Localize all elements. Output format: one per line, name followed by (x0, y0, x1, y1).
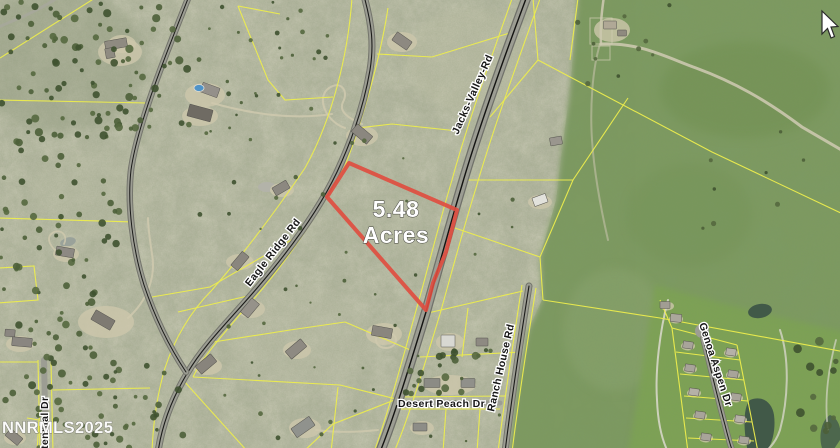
building (424, 379, 440, 388)
tree (114, 370, 118, 374)
tree (168, 61, 172, 65)
tree (226, 91, 231, 96)
tree (833, 359, 838, 364)
tree (121, 59, 125, 63)
tree (116, 104, 123, 111)
tree (76, 212, 82, 218)
tree (249, 138, 252, 141)
tree (98, 219, 106, 227)
tree (278, 47, 281, 50)
tree (105, 234, 111, 240)
tree (13, 263, 20, 270)
tree (103, 9, 111, 17)
tree (510, 198, 514, 202)
tree (204, 131, 208, 135)
tree (113, 395, 117, 399)
tree (354, 409, 357, 412)
parcel-acreage-unit: Acres (363, 222, 429, 248)
tree (831, 415, 836, 420)
tree (88, 345, 92, 349)
swimming-pool (194, 85, 204, 92)
tree (49, 6, 53, 10)
tree (258, 374, 261, 377)
tree (169, 26, 175, 32)
tree (152, 14, 160, 22)
tree (338, 313, 341, 316)
tree (59, 194, 64, 199)
tree (793, 345, 802, 354)
tree (101, 178, 106, 183)
tree (110, 360, 117, 367)
building (441, 335, 455, 347)
tree (775, 202, 780, 207)
tree (69, 381, 73, 385)
tree (197, 57, 202, 62)
tree (125, 93, 133, 101)
tree (174, 36, 181, 43)
tree (823, 428, 829, 434)
tree (88, 298, 96, 306)
tree (53, 334, 59, 340)
tree (56, 249, 62, 255)
building (728, 370, 739, 378)
tree (474, 253, 477, 256)
tree (810, 425, 817, 432)
tree (830, 367, 837, 374)
tree (35, 320, 39, 324)
tree (139, 6, 143, 10)
tree (472, 352, 480, 360)
tree (155, 428, 159, 432)
tree (134, 395, 138, 399)
tree (300, 30, 305, 35)
aerial-map-view: 5.48 Acres Jacks-Valley-Rd Eagle Ridge R… (0, 0, 840, 448)
tree (150, 414, 157, 421)
tree (226, 324, 230, 328)
tree (779, 130, 782, 133)
tree (29, 89, 34, 94)
tree (3, 207, 9, 213)
tree (414, 273, 417, 276)
tree (71, 179, 77, 185)
building (683, 341, 694, 349)
tree (125, 45, 133, 53)
tree (46, 331, 51, 336)
tree (72, 58, 78, 64)
tree (16, 14, 21, 19)
tree (107, 200, 114, 207)
tree (71, 258, 75, 262)
building (689, 388, 700, 396)
tree (276, 435, 281, 440)
tree (32, 3, 39, 10)
tree (28, 327, 33, 332)
tree (585, 81, 590, 86)
tree (83, 381, 89, 387)
building (701, 433, 712, 441)
tree (75, 45, 81, 51)
tree (123, 108, 129, 114)
tree (249, 38, 253, 42)
parcel-acreage-value: 5.48 (373, 196, 420, 222)
tree (298, 9, 302, 13)
tree (107, 26, 113, 32)
building (685, 364, 696, 372)
tree (103, 374, 109, 380)
tree (85, 258, 89, 262)
tree (350, 141, 354, 145)
tree (209, 130, 212, 133)
tree (280, 56, 283, 59)
tree (796, 408, 805, 417)
building (726, 348, 737, 356)
tree (441, 384, 449, 392)
tree (240, 101, 243, 104)
tree (362, 138, 367, 143)
tree (83, 345, 88, 350)
tree (115, 123, 123, 131)
tree (47, 384, 53, 390)
tree (95, 116, 103, 124)
tree (42, 43, 47, 48)
tree (55, 85, 62, 92)
tree (309, 302, 311, 304)
tree (34, 389, 40, 395)
tree (139, 41, 144, 46)
tree (458, 389, 464, 395)
tree (110, 377, 116, 383)
tree (592, 42, 596, 46)
tree (295, 285, 298, 288)
tree (403, 389, 409, 395)
tree (186, 122, 192, 128)
tree (294, 175, 298, 179)
tree (60, 116, 64, 120)
tree (345, 251, 348, 254)
tree (90, 111, 95, 116)
tree (124, 424, 129, 429)
tree (183, 65, 191, 73)
tree (277, 93, 281, 97)
tree (60, 311, 64, 315)
tree (323, 56, 327, 60)
building (413, 423, 427, 431)
tree (82, 274, 87, 279)
tree (75, 131, 82, 138)
tree (54, 234, 58, 238)
tree (147, 125, 151, 129)
tree (451, 349, 458, 356)
tree (806, 363, 814, 371)
tree (129, 127, 133, 131)
tree (52, 132, 58, 138)
building (12, 337, 33, 348)
tree (402, 157, 404, 159)
tree (101, 192, 105, 196)
tree (125, 56, 131, 62)
tree (179, 120, 185, 126)
tree (93, 91, 100, 98)
tree (87, 375, 92, 380)
tree (429, 435, 432, 438)
tree (709, 158, 713, 162)
tree (50, 33, 57, 40)
tree (96, 59, 102, 65)
tree (286, 17, 289, 20)
tree (262, 322, 266, 326)
building (5, 329, 16, 337)
tree (132, 422, 136, 426)
tree (259, 228, 261, 230)
tree (511, 226, 514, 229)
tree (156, 4, 162, 10)
building (670, 314, 682, 323)
tree (112, 240, 119, 247)
tree (9, 390, 16, 397)
tree (93, 34, 99, 40)
tree (43, 354, 50, 361)
tree (36, 226, 43, 233)
tree (155, 402, 162, 409)
tree (275, 31, 280, 36)
tree (39, 136, 45, 142)
tree (26, 130, 30, 134)
tree (15, 321, 22, 328)
tree (2, 175, 7, 180)
tree (460, 377, 463, 380)
tree (30, 213, 37, 220)
tree (575, 20, 580, 25)
tree (309, 107, 313, 111)
tree (106, 111, 111, 116)
tree (162, 371, 167, 376)
tree (157, 94, 161, 98)
tree (87, 7, 93, 13)
tree (144, 363, 150, 369)
tree (374, 293, 377, 296)
tree (40, 367, 47, 374)
tree (488, 349, 492, 353)
tree (326, 34, 330, 38)
tree (17, 85, 22, 90)
tree (465, 440, 467, 442)
tree (313, 366, 315, 368)
tree (71, 15, 79, 23)
tree (478, 213, 481, 216)
tree (438, 363, 442, 367)
tree (313, 57, 316, 60)
tree (104, 442, 108, 446)
tree (333, 141, 336, 144)
building (660, 302, 670, 309)
mls-watermark: NNRMLS2025 (2, 419, 113, 437)
tree (49, 96, 54, 101)
tree (328, 420, 332, 424)
tree (175, 386, 182, 393)
tree (143, 395, 148, 400)
tree (44, 88, 49, 93)
tree (417, 355, 420, 358)
tree (232, 180, 237, 185)
tree (237, 31, 240, 34)
building (695, 411, 706, 419)
tree (35, 128, 43, 136)
tree (711, 221, 716, 226)
tree (362, 367, 365, 370)
tree (8, 33, 15, 40)
building (461, 379, 475, 388)
tree (151, 27, 156, 32)
tree (319, 432, 323, 436)
tree (15, 139, 23, 147)
tree (343, 279, 347, 283)
tree (110, 59, 118, 67)
tree (418, 386, 424, 392)
tree (31, 71, 36, 76)
tree (418, 370, 425, 377)
tree (85, 135, 89, 139)
tree (255, 94, 258, 97)
tree (58, 407, 64, 413)
tree (90, 291, 97, 298)
tree (42, 155, 49, 162)
tree (21, 199, 28, 206)
tree (8, 50, 13, 55)
tree (198, 212, 203, 217)
tree (32, 342, 36, 346)
tree (251, 361, 254, 364)
tree (802, 158, 805, 161)
tree (816, 369, 823, 376)
tree (113, 209, 118, 214)
tree (643, 39, 648, 44)
building (476, 338, 488, 346)
tree (97, 391, 102, 396)
tree (90, 351, 98, 359)
tree (28, 381, 36, 389)
tree (26, 36, 30, 40)
tree (442, 373, 450, 381)
tree (227, 212, 231, 216)
tree (31, 115, 39, 123)
building (618, 30, 627, 36)
tree (484, 348, 488, 352)
building (739, 436, 750, 444)
tree (134, 71, 138, 75)
tree (0, 9, 7, 16)
tree (133, 96, 138, 101)
tree (23, 236, 28, 241)
tree (0, 227, 4, 231)
tree (57, 316, 63, 322)
tree (223, 394, 226, 397)
tree (393, 324, 396, 327)
tree (452, 357, 459, 364)
tree (58, 370, 66, 378)
tree (2, 287, 6, 291)
tree (60, 36, 68, 44)
tree (19, 178, 26, 185)
building (735, 415, 746, 423)
tree (76, 331, 82, 337)
tree (137, 117, 143, 123)
tree (667, 3, 671, 7)
tree (52, 59, 58, 65)
tree (104, 126, 110, 132)
tree (24, 374, 29, 379)
tree (622, 14, 626, 18)
tree (815, 337, 824, 346)
tree (2, 397, 8, 403)
tree (129, 84, 133, 88)
tree (321, 192, 326, 197)
tree (701, 227, 704, 230)
tree (372, 388, 375, 391)
tree (498, 413, 501, 416)
tree (258, 411, 263, 416)
tree (274, 196, 278, 200)
tree (54, 398, 62, 406)
tree (57, 133, 63, 139)
tree (162, 64, 167, 69)
tree (765, 171, 768, 174)
tree (228, 127, 231, 130)
tree (58, 214, 64, 220)
tree (37, 245, 42, 250)
tree (272, 1, 275, 4)
tree (116, 436, 123, 443)
map-canvas: 5.48 Acres Jacks-Valley-Rd Eagle Ridge R… (0, 0, 840, 448)
tree (235, 114, 238, 117)
tree (440, 352, 446, 358)
tree (636, 46, 641, 51)
building (604, 21, 617, 29)
tree (111, 46, 117, 52)
tree (407, 368, 413, 374)
tree (113, 404, 118, 409)
tree (62, 321, 70, 329)
tree (61, 81, 66, 86)
tree (55, 344, 62, 351)
tree (77, 163, 81, 167)
tree (71, 120, 76, 125)
tree (139, 74, 146, 81)
tree (436, 390, 442, 396)
tree (651, 53, 654, 56)
tree (149, 108, 154, 113)
tree (55, 163, 61, 169)
tree (28, 21, 34, 27)
tree (810, 394, 816, 400)
building (549, 136, 562, 146)
tree (316, 49, 321, 54)
tree (56, 223, 62, 229)
tree (98, 23, 102, 27)
tree (18, 148, 24, 154)
tree (32, 287, 40, 295)
tree (57, 153, 64, 160)
tree (713, 187, 716, 190)
tree (80, 68, 84, 72)
tree (100, 131, 108, 139)
tree (175, 56, 183, 64)
tree (151, 85, 159, 93)
tree (91, 81, 95, 85)
tree (63, 282, 70, 289)
tree (179, 432, 186, 439)
tree (57, 15, 62, 20)
tree (617, 74, 621, 78)
